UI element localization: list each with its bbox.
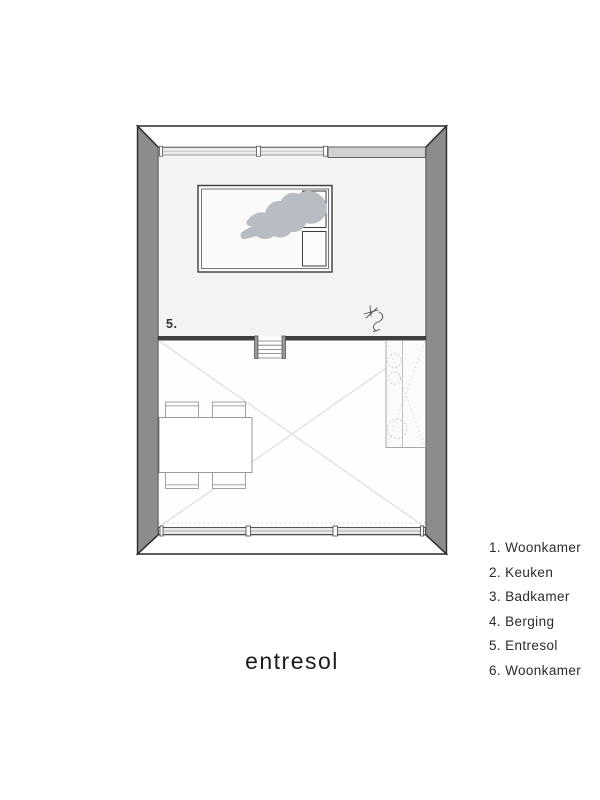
floor-plan-page: 5.	[0, 0, 600, 800]
chair-icon	[166, 402, 199, 418]
chair-icon	[213, 402, 246, 418]
legend-item: 6.Woonkamer	[489, 659, 581, 684]
chair-icon	[213, 473, 246, 489]
bed-icon	[198, 186, 332, 273]
legend-item-label: Keuken	[505, 565, 553, 580]
chair-icon	[166, 473, 199, 489]
roof-cut-bottom	[138, 535, 447, 555]
legend-item-number: 3.	[489, 589, 501, 604]
window-mullion	[160, 526, 163, 536]
pillow-icon	[303, 232, 327, 267]
legend-item-label: Woonkamer	[505, 540, 581, 555]
legend-item: 1.Woonkamer	[489, 536, 581, 561]
window-mullion	[421, 526, 424, 536]
legend-item-label: Entresol	[505, 638, 558, 653]
legend-item: 4.Berging	[489, 610, 581, 635]
legend-item-number: 5.	[489, 638, 501, 653]
legend-item: 2.Keuken	[489, 561, 581, 586]
room-legend: 1.Woonkamer 2.Keuken 3.Badkamer 4.Bergin…	[489, 536, 581, 683]
window-sill-gray-strip	[328, 147, 426, 158]
wall-left	[138, 126, 159, 554]
roof-cut-top	[138, 126, 447, 148]
kitchen-counter-icon	[386, 341, 426, 448]
legend-item-number: 4.	[489, 614, 501, 629]
legend-item-label: Berging	[505, 614, 554, 629]
legend-item-number: 6.	[489, 663, 501, 678]
legend-item: 5.Entresol	[489, 634, 581, 659]
room-number-label: 5.	[166, 317, 177, 331]
mezzanine-edge-wall	[159, 336, 426, 341]
legend-item-number: 2.	[489, 565, 501, 580]
window-mullion	[333, 526, 338, 536]
legend-item: 3.Badkamer	[489, 585, 581, 610]
legend-item-label: Woonkamer	[505, 663, 581, 678]
window-mullion	[257, 146, 261, 156]
window-mullion	[160, 146, 163, 156]
dining-table-icon	[159, 418, 252, 473]
legend-item-label: Badkamer	[505, 589, 570, 604]
window-band-bottom	[159, 526, 426, 536]
wall-right	[426, 126, 447, 554]
window-mullion	[246, 526, 251, 536]
plan-title: entresol	[137, 648, 447, 675]
legend-item-number: 1.	[489, 540, 501, 555]
window-mullion	[324, 146, 328, 156]
